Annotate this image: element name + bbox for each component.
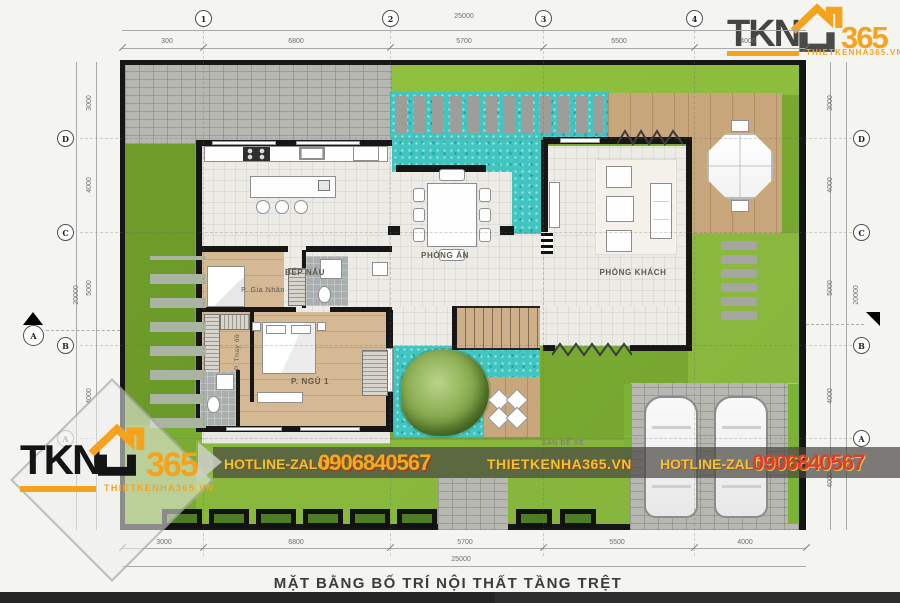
kitchen-sink: [299, 147, 325, 160]
wall-y246-a: [196, 246, 288, 252]
logo-top-site: THIETKENHA365.VN: [806, 48, 900, 57]
fridge: [353, 146, 379, 161]
dim-line-top-total: [122, 30, 806, 31]
deck-parasol-table: [707, 133, 773, 199]
grid-bubble-left-d: D: [57, 130, 74, 147]
pillow-1a: [266, 325, 286, 334]
bar-stool-1: [256, 200, 270, 214]
bedroom-dresser: [362, 350, 388, 396]
dim-line-bottom-seg: [122, 548, 806, 549]
column-block-2: [500, 226, 514, 235]
dim-bottom-1: 6800: [276, 539, 316, 546]
grid-bubble-left-b: B: [57, 337, 74, 354]
watermark-arrow: [198, 442, 222, 482]
bottom-dark-strip: [0, 592, 900, 603]
pool-arm: [512, 133, 541, 234]
logo-bottom-num: 365: [146, 446, 197, 485]
kitchen-window-2: [296, 141, 360, 145]
dining-chair-r1: [479, 188, 491, 202]
planter-box-6: [397, 509, 437, 528]
grid-bubble-col-1: 1: [195, 10, 212, 27]
grid-bubble-col-2: 2: [382, 10, 399, 27]
label-dining: PHÒNG ĂN: [395, 251, 495, 260]
logo-top-house-icon: [790, 0, 844, 54]
grid-line-row-d: [80, 138, 852, 139]
grid-bubble-left-c: C: [57, 224, 74, 241]
dining-chair-r3: [479, 228, 491, 242]
grid-line-row-a: [80, 438, 852, 439]
section-marker-circle: A: [23, 325, 44, 346]
dim-tick: [803, 544, 810, 551]
paving-entry-walk: [438, 478, 508, 524]
hotline-label-1: HOTLINE-ZALO:: [224, 456, 333, 472]
hotline-phone-2: 0906840567: [752, 450, 864, 476]
coffee-table: [606, 196, 634, 222]
hotline-phone-1: 0906840567: [318, 450, 430, 476]
dim-right-2: 5000: [825, 271, 835, 305]
stairs-wall: [452, 306, 457, 350]
section-marker-triangle-left: [23, 312, 43, 325]
bedroom-window-1: [226, 427, 282, 431]
dining-table: [427, 183, 477, 247]
stepping-stones-right: [721, 236, 757, 320]
label-maid-room: P. Gia Nhân: [213, 287, 313, 294]
label-bedroom1: P. NGỦ 1: [260, 377, 360, 386]
dim-left-0: 3000: [84, 86, 94, 120]
label-kitchen: BẾP NẤU: [255, 268, 355, 277]
living-deck-wall: [686, 137, 692, 345]
dining-chair-l2: [413, 208, 425, 222]
bedroom-window-2: [300, 427, 360, 431]
dim-left-2: 5000: [84, 271, 94, 305]
grid-bubble-right-c: C: [853, 224, 870, 241]
planter-box-3: [256, 509, 296, 528]
dim-bottom-2: 5700: [445, 539, 485, 546]
dining-chair-l3: [413, 228, 425, 242]
logo-top-brand: TKN: [727, 13, 799, 56]
label-parking: SÂN ĐỂ XE: [513, 440, 613, 447]
planter-box-4: [303, 509, 343, 528]
vanity-1: [372, 262, 388, 276]
dim-top-total: 25000: [434, 13, 494, 20]
logo-bottom-underline: [20, 486, 96, 492]
dim-top-3: 5500: [599, 38, 639, 45]
planter-box-5: [350, 509, 390, 528]
planter-box-7: [516, 509, 552, 528]
grid-line-row-c: [80, 232, 852, 233]
wall-y246-b: [306, 246, 392, 252]
planter-box-8: [560, 509, 596, 528]
dim-top-0: 300: [147, 38, 187, 45]
kitchen-window-1: [212, 141, 276, 145]
island-sink: [318, 180, 330, 191]
label-dressing-room: P. Thay đồ: [232, 327, 242, 377]
deck-chair-north: [731, 120, 749, 132]
dining-chair-l1: [413, 188, 425, 202]
grid-bubble-right-a: A: [853, 430, 870, 447]
dining-chair-r2: [479, 208, 491, 222]
deck-chair-south: [731, 200, 749, 212]
bath2-wall: [236, 370, 240, 426]
section-dash-right: [806, 324, 864, 325]
dim-left-1: 4000: [84, 168, 94, 202]
gate-gap: [438, 524, 508, 530]
dim-line-top-seg: [122, 48, 806, 49]
bar-stool-3: [294, 200, 308, 214]
dim-right-total: 20000: [851, 275, 861, 315]
dim-top-2: 5700: [444, 38, 484, 45]
logo-bottom-site: THIETKENHA365.VN: [104, 483, 214, 493]
toilet-1: [318, 286, 331, 303]
section-marker-triangle-right: [866, 312, 880, 326]
dim-bottom-4: 4000: [725, 539, 765, 546]
pillow-1b: [291, 325, 311, 334]
planter-box-2: [209, 509, 249, 528]
grid-bubble-col-4: 4: [686, 10, 703, 27]
dim-right-0: 3000: [825, 86, 835, 120]
stove: [243, 147, 270, 161]
dim-top-1: 6800: [276, 38, 316, 45]
dim-right-3: 4000: [825, 379, 835, 413]
label-living: PHÒNG KHÁCH: [583, 268, 683, 277]
logo-bottom-house-icon: [88, 420, 146, 478]
grid-bubble-right-d: D: [853, 130, 870, 147]
staircase: [456, 306, 540, 350]
site-wall-top: [120, 60, 806, 65]
armchair-top: [606, 166, 632, 188]
dim-bottom-total: 25000: [431, 556, 491, 563]
pool-slat-bridge: [396, 96, 604, 133]
sofa: [650, 183, 672, 239]
grid-bubble-col-3: 3: [535, 10, 552, 27]
nightstand-1: [252, 322, 261, 331]
dim-top-4: 4000: [728, 38, 768, 45]
logo-top-underline: [727, 51, 799, 56]
armchair-bottom: [606, 230, 632, 252]
dim-right-1: 4000: [825, 168, 835, 202]
dim-left-total: 20000: [71, 275, 81, 315]
hotline-site: THIETKENHA365.VN: [487, 456, 632, 472]
stepping-stones-left: [150, 256, 206, 428]
dim-line-bottom-total: [122, 566, 806, 567]
dining-chair-top: [439, 169, 465, 181]
driveway-gap: [630, 524, 799, 530]
tv-console: [549, 182, 560, 228]
bed-bench: [257, 392, 303, 403]
wall-y307-b: [330, 307, 392, 312]
plan-title: MẶT BẰNG BỐ TRÍ NỘI THẤT TẦNG TRỆT: [90, 575, 806, 592]
wall-y307-a: [196, 307, 296, 312]
grid-bubble-right-b: B: [853, 337, 870, 354]
dim-bottom-3: 5500: [597, 539, 637, 546]
toilet-2: [207, 396, 220, 413]
grid-line-row-b: [80, 345, 852, 346]
paving-top-left: [125, 65, 392, 144]
floor-plan-screenshot: BẾP NẤU PHÒNG ĂN PHÒNG KHÁCH P. Gia Nhân…: [0, 0, 900, 603]
deck-lower: [483, 377, 540, 437]
nightstand-2: [317, 322, 326, 331]
section-dash-left: [46, 330, 120, 331]
bar-stool-2: [275, 200, 289, 214]
